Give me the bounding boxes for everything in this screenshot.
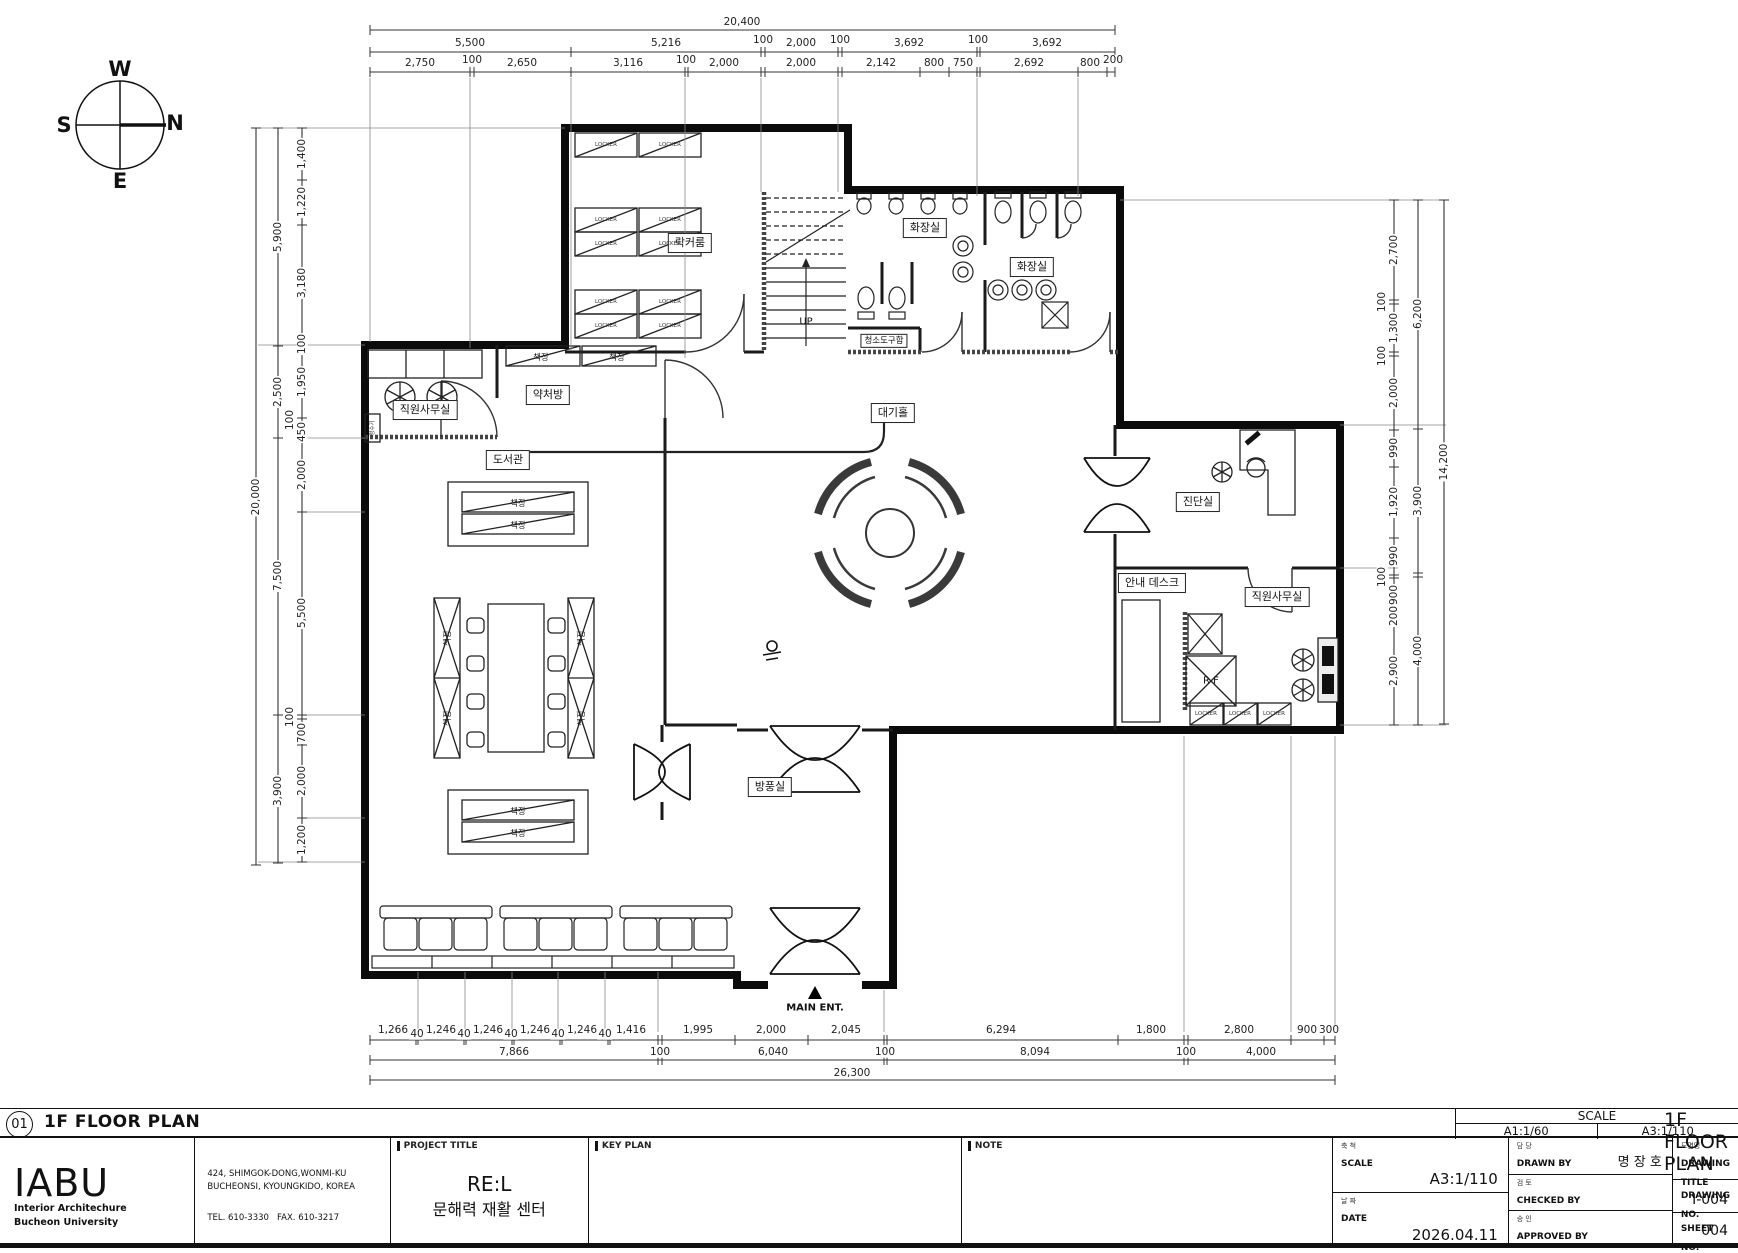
compass-rose	[76, 81, 166, 169]
dim-label: 800	[923, 58, 945, 69]
dim-label: 5,500	[454, 38, 486, 49]
drawing-info-cell: 도면명 DRAWING TITLE 1F FLOOR PLAN DRAWING …	[1673, 1138, 1738, 1243]
scale-value: A3:1/110	[1430, 1170, 1498, 1188]
dim-label: 1,416	[615, 1025, 647, 1036]
dim-label: 4,000	[1245, 1047, 1277, 1058]
dim-label: 8,094	[1019, 1047, 1051, 1058]
locker-label: LOCKER	[1229, 711, 1251, 717]
dim-label: 2,000	[708, 58, 740, 69]
logo-sub-univ: Bucheon University	[14, 1216, 127, 1230]
date-value: 2026.04.11	[1412, 1226, 1498, 1244]
approved-kor: 승 인	[1517, 1214, 1664, 1224]
note-cell: NOTE	[962, 1138, 1333, 1243]
dim-label: 1,995	[682, 1025, 714, 1036]
date-kor: 날 짜	[1341, 1196, 1500, 1206]
locker-label: LOCKER	[659, 241, 681, 247]
scale-label: SCALE	[1341, 1159, 1373, 1169]
dim-label: 700	[297, 722, 308, 744]
floor-plan-sheet: { "compass": {"top": "W", "right": "N", …	[0, 0, 1738, 1253]
dim-label: 100	[1377, 345, 1388, 367]
locker-label: LOCKER	[659, 323, 681, 329]
drawn-value: 명 장 호	[1618, 1151, 1662, 1170]
dim-label: 100	[752, 35, 774, 46]
room-label-info-desk: 안내 데스크	[1118, 573, 1186, 593]
dim-label: 200	[1389, 605, 1400, 627]
dim-label: 300	[1318, 1025, 1340, 1036]
dim-label: 6,294	[985, 1025, 1017, 1036]
dim-label: 100	[461, 55, 483, 66]
bookshelf-label: 책장	[441, 630, 453, 646]
dim-label: 2,692	[1013, 58, 1045, 69]
extension-lines	[258, 78, 1446, 1036]
dim-label: 990	[1389, 437, 1400, 459]
dim-label: 7,866	[498, 1047, 530, 1058]
dim-label: 40	[409, 1029, 424, 1040]
project-title-main: RE:L	[391, 1172, 588, 1196]
dim-label: 2,500	[273, 376, 284, 408]
dim-label: 100	[297, 333, 308, 355]
locker-label: LOCKER	[595, 217, 617, 223]
dim-label: 100	[829, 35, 851, 46]
outer-walls	[365, 128, 1340, 985]
dim-label: 6,040	[757, 1047, 789, 1058]
dim-label: 1,246	[472, 1025, 504, 1036]
room-label-staff-office-right: 직원사무실	[1245, 587, 1310, 607]
logo-sub-dept: Interior Architechure	[14, 1202, 127, 1216]
checked-kor: 검 토	[1517, 1178, 1664, 1188]
compass-east: E	[113, 169, 127, 193]
bookshelf-label: 책장	[510, 519, 526, 531]
dim-label: 2,000	[297, 459, 308, 491]
dim-label: 2,000	[297, 765, 308, 797]
date-label: DATE	[1341, 1214, 1367, 1224]
title-block: IABU Interior Architechure Bucheon Unive…	[0, 1138, 1738, 1248]
dim-label: 100	[285, 706, 296, 728]
dim-label: 2,000	[755, 1025, 787, 1036]
logo-text: IABU	[14, 1164, 127, 1202]
dim-label: 1,950	[297, 366, 308, 398]
sheet-value: 004	[1701, 1223, 1728, 1239]
dim-label: 1,220	[297, 186, 308, 218]
dim-label: 100	[967, 35, 989, 46]
dim-label: 3,900	[273, 775, 284, 807]
key-plan-cell: KEY PLAN	[589, 1138, 962, 1243]
hall-circle-feature	[818, 462, 961, 604]
address-line1: 424, SHIMGOK-DONG,WONMI-KU	[207, 1169, 346, 1179]
dim-label: 800	[1079, 58, 1101, 69]
bookshelf-label: 책장	[575, 710, 587, 726]
staff-office-left-fixtures	[365, 350, 482, 442]
dim-label: 40	[550, 1029, 565, 1040]
dim-label: 1,400	[297, 138, 308, 170]
compass-west: W	[108, 57, 131, 81]
locker-label: LOCKER	[595, 142, 617, 148]
title-block-address-cell: 424, SHIMGOK-DONG,WONMI-KU BUCHEONSI, KY…	[195, 1138, 390, 1243]
dim-label: 7,500	[273, 560, 284, 592]
dim-label: 14,200	[1439, 443, 1450, 482]
key-plan-label: KEY PLAN	[595, 1141, 652, 1151]
dim-label: 2,045	[830, 1025, 862, 1036]
drawing-title-band: 1F FLOOR PLAN	[44, 1112, 200, 1132]
drawn-kor: 담 당	[1517, 1141, 1664, 1151]
dim-label: 100	[1377, 291, 1388, 313]
checked-label: CHECKED BY	[1517, 1196, 1581, 1206]
pharmacy-counter	[500, 422, 884, 452]
dim-label: 20,400	[723, 17, 762, 28]
dim-label: 2,000	[1389, 377, 1400, 409]
dim-label: 100	[874, 1047, 896, 1058]
locker-label: LOCKER	[659, 217, 681, 223]
dim-label: 3,692	[1031, 38, 1063, 49]
dim-label: 2,000	[785, 38, 817, 49]
dim-label: 2,142	[865, 58, 897, 69]
dim-label: 2,900	[1389, 655, 1400, 687]
room-label-toilet-1: 화장실	[903, 218, 947, 238]
dim-label: 900	[1296, 1025, 1318, 1036]
approved-label: APPROVED BY	[1517, 1232, 1588, 1242]
dim-label: 100	[1175, 1047, 1197, 1058]
project-title-sub: 문해력 재활 센터	[391, 1196, 588, 1220]
dim-label: 6,200	[1413, 298, 1424, 330]
dim-label: 3,180	[297, 267, 308, 299]
room-label-pharmacy: 약처방	[526, 385, 570, 405]
tel: TEL. 610-3330	[207, 1213, 269, 1223]
dim-label: 3,116	[612, 58, 644, 69]
room-label-cleaning-closet: 청소도구함	[860, 334, 907, 348]
address-line2: BUCHEONSI, KYOUNGKIDO, KOREA	[207, 1182, 355, 1192]
locker-label: LOCKER	[595, 323, 617, 329]
locker-label: LOCKER	[595, 299, 617, 305]
dim-label: 450	[297, 421, 308, 443]
dim-label: 1,920	[1389, 486, 1400, 518]
room-label-library: 도서관	[486, 450, 530, 470]
dim-label: 750	[952, 58, 974, 69]
refrigerator-label: R F	[1203, 676, 1219, 687]
main-entrance-label: MAIN ENT.	[786, 1003, 844, 1014]
dim-label: 1,300	[1389, 312, 1400, 344]
locker-label: LOCKER	[659, 299, 681, 305]
room-label-windbreak-room: 방풍실	[748, 777, 792, 797]
dim-label: 26,300	[833, 1068, 872, 1079]
person-symbol	[763, 641, 781, 660]
note-label: NOTE	[968, 1141, 1002, 1151]
dim-label: 40	[456, 1029, 471, 1040]
project-title-label: PROJECT TITLE	[397, 1141, 478, 1151]
dim-label: 200	[1102, 55, 1124, 66]
title-block-logo-cell: IABU Interior Architechure Bucheon Unive…	[0, 1138, 195, 1243]
scale-date-cell: 축 척 SCALE A3:1/110 날 짜 DATE 2026.04.11	[1333, 1138, 1509, 1243]
bookshelf-label: 책장	[575, 630, 587, 646]
fax: FAX. 610-3217	[277, 1213, 339, 1223]
dim-label: 1,800	[1135, 1025, 1167, 1036]
stairs-up-label: UP	[799, 317, 812, 328]
compass-north: N	[166, 111, 184, 135]
dim-label: 5,500	[297, 597, 308, 629]
room-label-waiting-hall: 대기홀	[871, 403, 915, 423]
drawing-header-band: 01 1F FLOOR PLAN SCALE A1:1/60 A3:1/110	[0, 1108, 1738, 1138]
dim-label: 990	[1389, 545, 1400, 567]
dim-label: 5,216	[650, 38, 682, 49]
bookshelf-label: 책장	[609, 351, 625, 363]
locker-label: LOCKER	[1195, 711, 1217, 717]
bookshelf-label: 책장	[441, 710, 453, 726]
bookshelf-label: 책장	[510, 497, 526, 509]
dim-label: 2,650	[506, 58, 538, 69]
dim-label: 1,246	[425, 1025, 457, 1036]
dim-label: 1,266	[377, 1025, 409, 1036]
locker-label: LOCKER	[595, 241, 617, 247]
room-label-staff-office-left: 직원사무실	[393, 400, 458, 420]
dim-label: 3,900	[1413, 485, 1424, 517]
sofa-row	[372, 906, 734, 968]
dim-label: 20,000	[251, 478, 262, 517]
room-label-diagnosis-room: 진단실	[1176, 492, 1220, 512]
dim-label: 1,246	[519, 1025, 551, 1036]
library-furniture	[434, 482, 594, 854]
dim-label: 40	[597, 1029, 612, 1040]
dim-label: 4,000	[1413, 635, 1424, 667]
locker-label: LOCKER	[1263, 711, 1285, 717]
signoff-cell: 담 당 DRAWN BY 명 장 호 검 토 CHECKED BY 승 인 AP…	[1509, 1138, 1673, 1243]
dim-label: 1,246	[566, 1025, 598, 1036]
bookshelf-label: 책장	[533, 351, 549, 363]
compass-south: S	[56, 113, 71, 137]
bookshelf-label: 책장	[510, 805, 526, 817]
dim-label: 1,200	[297, 824, 308, 856]
dim-label: 100	[285, 409, 296, 431]
scale-kor: 축 척	[1341, 1141, 1500, 1151]
dim-label: 100	[649, 1047, 671, 1058]
locker-label: LOCKER	[659, 142, 681, 148]
dim-label: 2,750	[404, 58, 436, 69]
dim-label: 100	[675, 55, 697, 66]
bookshelf-label: 책장	[510, 827, 526, 839]
dim-label: 40	[503, 1029, 518, 1040]
scale-a1: A1:1/60	[1456, 1124, 1598, 1139]
room-label-toilet-2: 화장실	[1010, 257, 1054, 277]
dim-label: 3,692	[893, 38, 925, 49]
dim-label: 100	[1377, 566, 1388, 588]
floor-plan-canvas	[0, 0, 1738, 1253]
dim-label: 2,800	[1223, 1025, 1255, 1036]
dtitle-value: 1F FLOOR PLAN	[1664, 1109, 1728, 1175]
project-title-cell: PROJECT TITLE RE:L 문해력 재활 센터	[391, 1138, 589, 1243]
drawn-label: DRAWN BY	[1517, 1159, 1571, 1169]
dim-label: 900	[1389, 584, 1400, 606]
drawing-number-badge: 01	[6, 1111, 33, 1138]
dno-value: I-004	[1692, 1192, 1728, 1208]
dim-label: 5,900	[273, 221, 284, 253]
dim-label: 2,700	[1389, 234, 1400, 266]
dim-label: 2,000	[785, 58, 817, 69]
water-purifier-label: 정수기	[368, 420, 376, 435]
